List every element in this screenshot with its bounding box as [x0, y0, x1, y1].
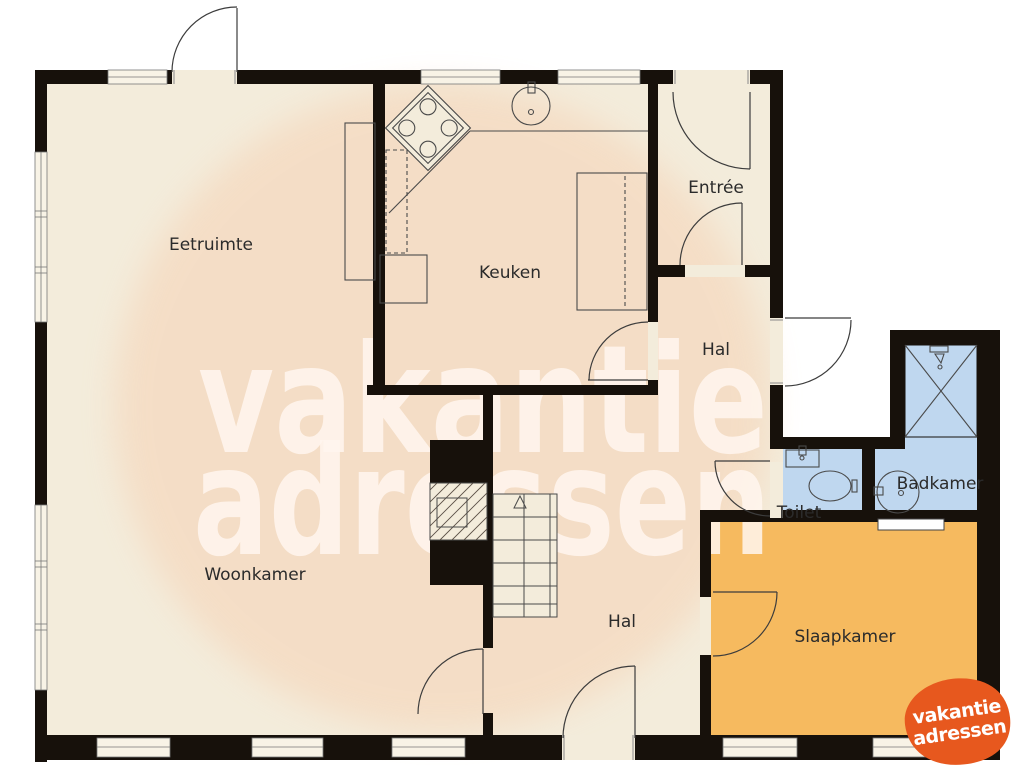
chimney-block-bottom	[430, 540, 487, 585]
keuken-hal-opening	[648, 322, 658, 380]
label-toilet: Toilet	[776, 503, 822, 523]
front-door-opening	[172, 70, 237, 84]
entree-door-opening	[673, 70, 750, 84]
window-top-2	[421, 70, 500, 84]
hal-bottom-door-opening	[562, 735, 635, 760]
floorplan-page: vakantie adressen	[0, 0, 1024, 768]
window-left-upper	[35, 152, 47, 322]
label-slaapkamer: Slaapkamer	[794, 627, 895, 647]
window-bottom-2	[252, 738, 323, 757]
sliding-door-badkamer	[878, 519, 944, 530]
window-bottom-1	[97, 738, 170, 757]
chimney-block-top	[430, 440, 487, 483]
label-eetruimte: Eetruimte	[169, 235, 253, 255]
back-door-opening	[770, 318, 783, 385]
label-keuken: Keuken	[479, 263, 541, 283]
window-bottom-4	[723, 738, 797, 757]
window-left-lower	[35, 505, 47, 690]
label-badkamer: Badkamer	[897, 474, 984, 494]
toilet-room-fill	[783, 449, 862, 510]
label-hal-upper: Hal	[702, 340, 730, 360]
slaapkamer-door-opening	[700, 597, 711, 655]
window-top-3	[558, 70, 640, 84]
entree-hal-opening	[685, 265, 745, 277]
window-top-1	[108, 70, 167, 84]
label-hal-lower: Hal	[608, 612, 636, 632]
window-bottom-3	[392, 738, 465, 757]
label-woonkamer: Woonkamer	[204, 565, 305, 585]
stairs	[493, 494, 557, 617]
label-entree: Entrée	[688, 178, 744, 198]
floorplan-svg: vakantie adressen	[0, 0, 1024, 768]
